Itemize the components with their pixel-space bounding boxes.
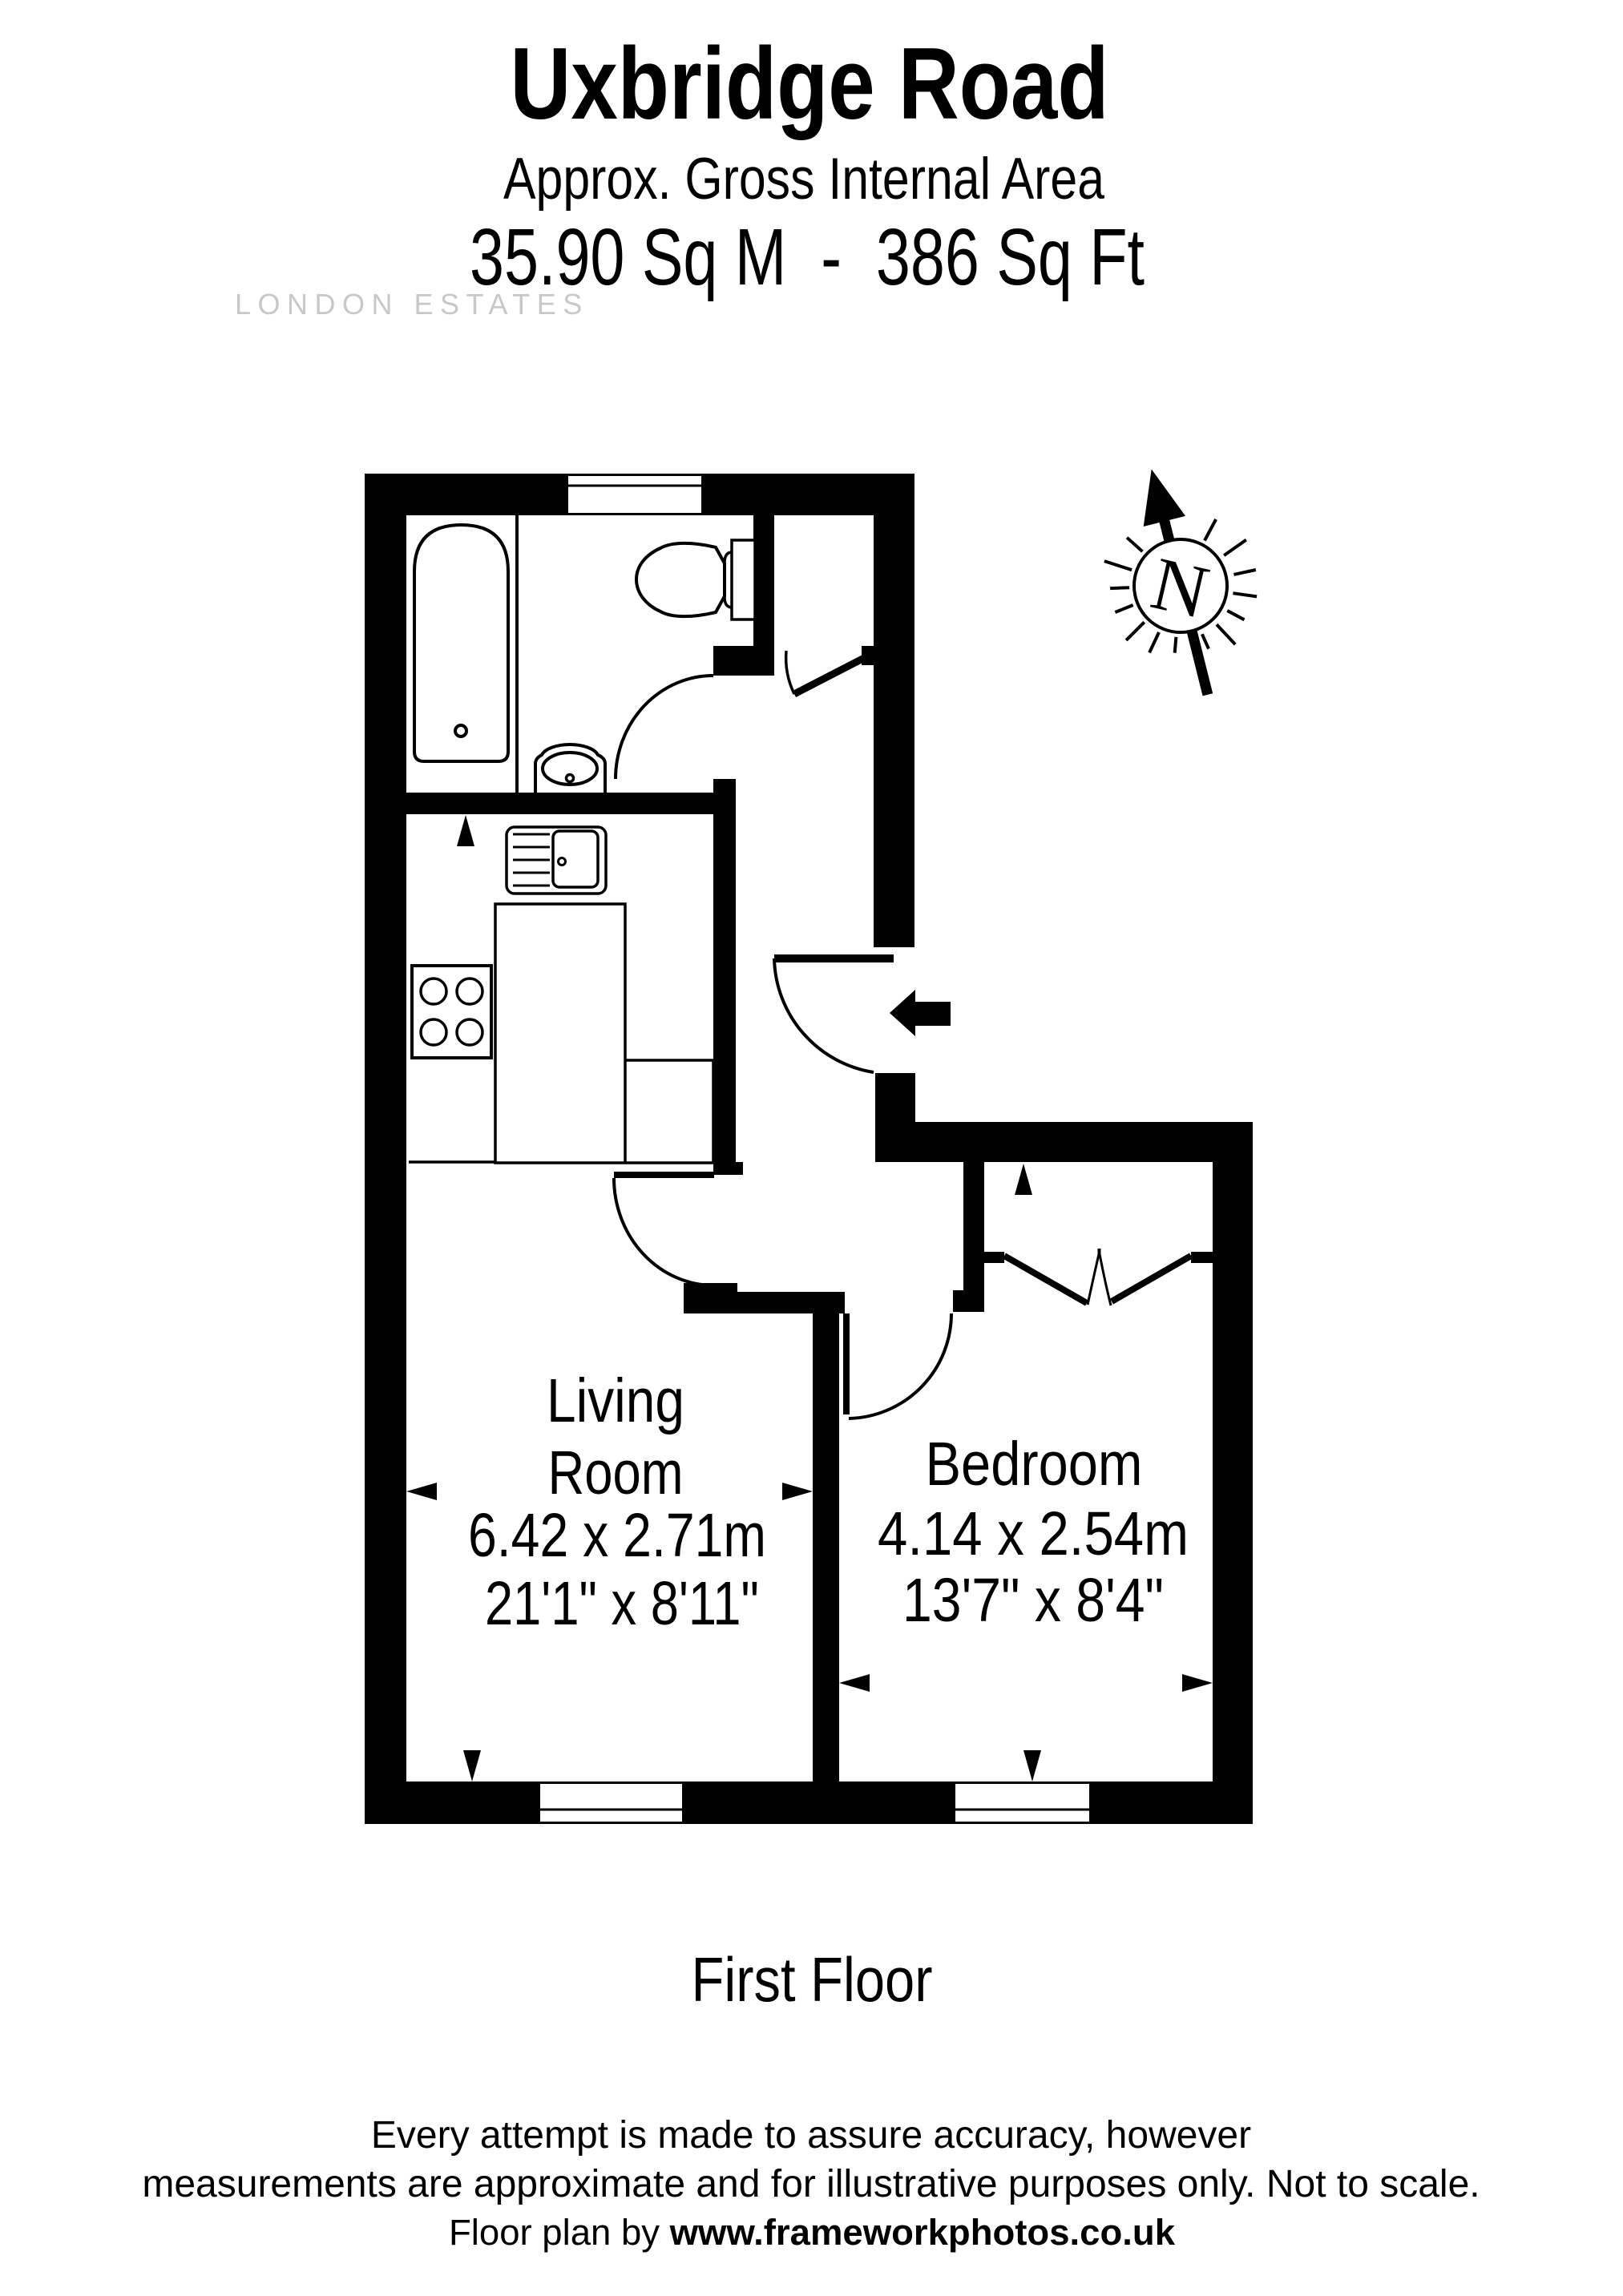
svg-text:Bedroom: Bedroom [926,1430,1143,1499]
svg-text:13'7" x 8'4": 13'7" x 8'4" [902,1566,1164,1635]
svg-text:6.42 x 2.71m: 6.42 x 2.71m [468,1501,766,1570]
svg-text:measurements are approximate a: measurements are approximate and for ill… [142,2163,1480,2205]
svg-text:4.14 x 2.54m: 4.14 x 2.54m [878,1499,1189,1568]
svg-text:Room: Room [548,1439,684,1507]
svg-text:First Floor: First Floor [692,1944,933,2015]
svg-text:21'1" x 8'11": 21'1" x 8'11" [485,1569,759,1638]
svg-text:LONDON ESTATES: LONDON ESTATES [235,288,589,321]
svg-text:Every attempt is made to assur: Every attempt is made to assure accuracy… [371,2114,1251,2157]
svg-text:Uxbridge Road: Uxbridge Road [511,26,1109,140]
svg-text:Approx. Gross Internal Area: Approx. Gross Internal Area [503,147,1104,212]
svg-text:Living: Living [547,1366,684,1435]
svg-text:Floor plan by www.frameworkpho: Floor plan by www.frameworkphotos.co.uk [449,2212,1176,2253]
